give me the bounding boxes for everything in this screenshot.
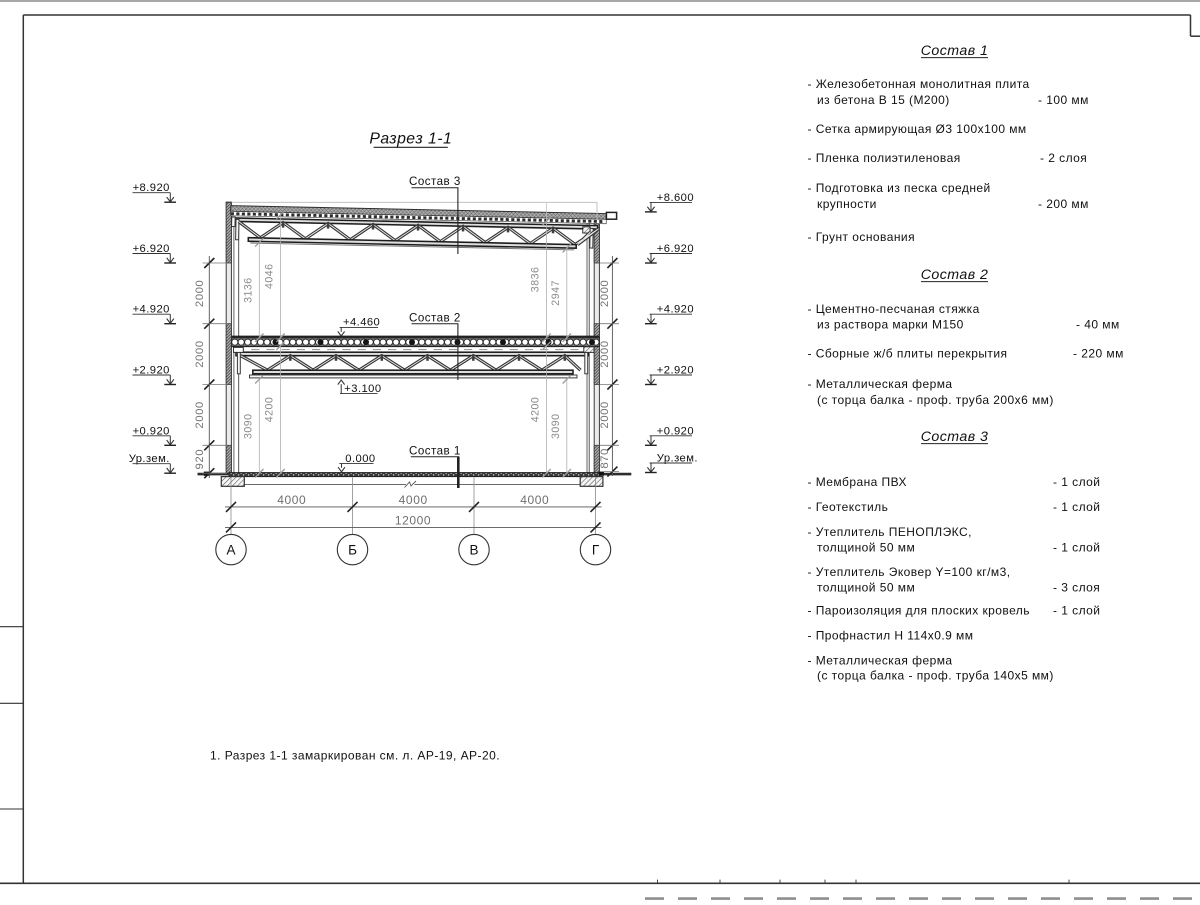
svg-text:- Пленка полиэтиленовая: - Пленка полиэтиленовая: [808, 151, 961, 165]
svg-text:2947: 2947: [550, 280, 562, 306]
svg-text:- Сетка армирующая Ø3 100х100: - Сетка армирующая Ø3 100х100 мм: [808, 122, 1027, 136]
svg-text:толщиной 50 мм: толщиной 50 мм: [817, 540, 915, 554]
svg-text:1. Разрез 1-1 замаркирован см.: 1. Разрез 1-1 замаркирован см. л. АР-19,…: [210, 749, 500, 763]
svg-text:Б: Б: [348, 543, 357, 558]
svg-text:- Пароизоляция для плоских кро: - Пароизоляция для плоских кровель: [808, 603, 1030, 617]
svg-text:- Металлическая ферма: - Металлическая ферма: [808, 653, 953, 667]
svg-text:- Железобетонная монолитная п: - Железобетонная монолитная плита: [808, 77, 1030, 91]
svg-text:- Сборные ж/б плиты перекрытия: - Сборные ж/б плиты перекрытия: [808, 346, 1008, 360]
svg-text:Состав 1: Состав 1: [409, 444, 461, 457]
svg-text:- 2 слоя: - 2 слоя: [1040, 151, 1087, 165]
svg-text:- Цементно-песчаная стяжка: - Цементно-песчаная стяжка: [808, 302, 980, 316]
svg-text:- 1 слой: - 1 слой: [1053, 603, 1100, 617]
svg-text:- 200 мм: - 200 мм: [1038, 197, 1089, 211]
svg-text:- Мембрана ПВХ: - Мембрана ПВХ: [808, 475, 908, 489]
svg-text:920: 920: [194, 449, 206, 470]
svg-text:Состав 2: Состав 2: [921, 267, 989, 283]
svg-text:- 3 слоя: - 3 слоя: [1053, 580, 1100, 594]
svg-text:- 220 мм: - 220 мм: [1073, 346, 1124, 360]
svg-text:крупности: крупности: [817, 197, 877, 211]
svg-text:4000: 4000: [399, 493, 428, 507]
svg-text:4200: 4200: [264, 397, 276, 423]
svg-text:из раствора марки М150: из раствора марки М150: [817, 317, 964, 331]
svg-text:2000: 2000: [194, 401, 206, 428]
svg-text:- 1 слой: - 1 слой: [1053, 475, 1100, 489]
svg-text:12000: 12000: [395, 514, 431, 528]
svg-text:- Утеплитель Эковер Y=100 кг/м: - Утеплитель Эковер Y=100 кг/м3,: [808, 565, 1011, 579]
svg-text:А: А: [226, 543, 235, 558]
svg-text:В: В: [469, 543, 478, 558]
svg-text:3836: 3836: [530, 267, 542, 293]
svg-text:870: 870: [599, 448, 611, 469]
svg-text:Разрез 1-1: Разрез 1-1: [369, 131, 452, 148]
svg-text:- 40 мм: - 40 мм: [1076, 317, 1120, 331]
svg-text:4000: 4000: [277, 493, 306, 507]
svg-text:+4.460: +4.460: [343, 317, 380, 329]
svg-text:Г: Г: [592, 543, 600, 558]
svg-text:2000: 2000: [194, 280, 206, 307]
svg-text:- Утеплитель ПЕНОПЛЭКС,: - Утеплитель ПЕНОПЛЭКС,: [808, 525, 972, 539]
svg-text:- Профнастил Н 114х0.9 мм: - Профнастил Н 114х0.9 мм: [808, 628, 974, 642]
svg-text:2000: 2000: [599, 401, 611, 428]
svg-text:из бетона В 15 (М200): из бетона В 15 (М200): [817, 93, 950, 107]
svg-text:- Геотекстиль: - Геотекстиль: [808, 500, 889, 514]
svg-text:- Грунт основания: - Грунт основания: [808, 230, 916, 244]
svg-text:Состав 2: Состав 2: [409, 311, 461, 324]
svg-text:- 1 слой: - 1 слой: [1053, 540, 1100, 554]
svg-text:2000: 2000: [194, 340, 206, 367]
svg-text:3090: 3090: [550, 413, 562, 439]
svg-text:Состав 1: Состав 1: [921, 43, 989, 59]
svg-text:+3.100: +3.100: [344, 383, 381, 395]
svg-text:2000: 2000: [599, 340, 611, 367]
svg-text:- 1 слой: - 1 слой: [1053, 500, 1100, 514]
svg-text:3136: 3136: [243, 277, 255, 303]
svg-text:4200: 4200: [530, 397, 542, 423]
svg-text:Состав 3: Состав 3: [409, 175, 461, 188]
svg-text:- Подготовка из песка средней: - Подготовка из песка средней: [808, 181, 991, 195]
svg-text:толщиной 50 мм: толщиной 50 мм: [817, 580, 915, 594]
svg-text:3090: 3090: [243, 413, 255, 439]
svg-text:Состав 3: Состав 3: [921, 429, 989, 445]
svg-text:- 100 мм: - 100 мм: [1038, 93, 1089, 107]
svg-text:(с торца балка - проф. труба 2: (с торца балка - проф. труба 200х6 мм): [817, 393, 1054, 407]
svg-text:4000: 4000: [520, 493, 549, 507]
svg-text:- Металлическая ферма: - Металлическая ферма: [808, 377, 953, 391]
svg-text:2000: 2000: [599, 280, 611, 307]
svg-text:0.000: 0.000: [345, 453, 375, 465]
svg-text:4046: 4046: [264, 263, 276, 289]
svg-text:(с торца балка - проф. труба 1: (с торца балка - проф. труба 140х5 мм): [817, 669, 1054, 683]
